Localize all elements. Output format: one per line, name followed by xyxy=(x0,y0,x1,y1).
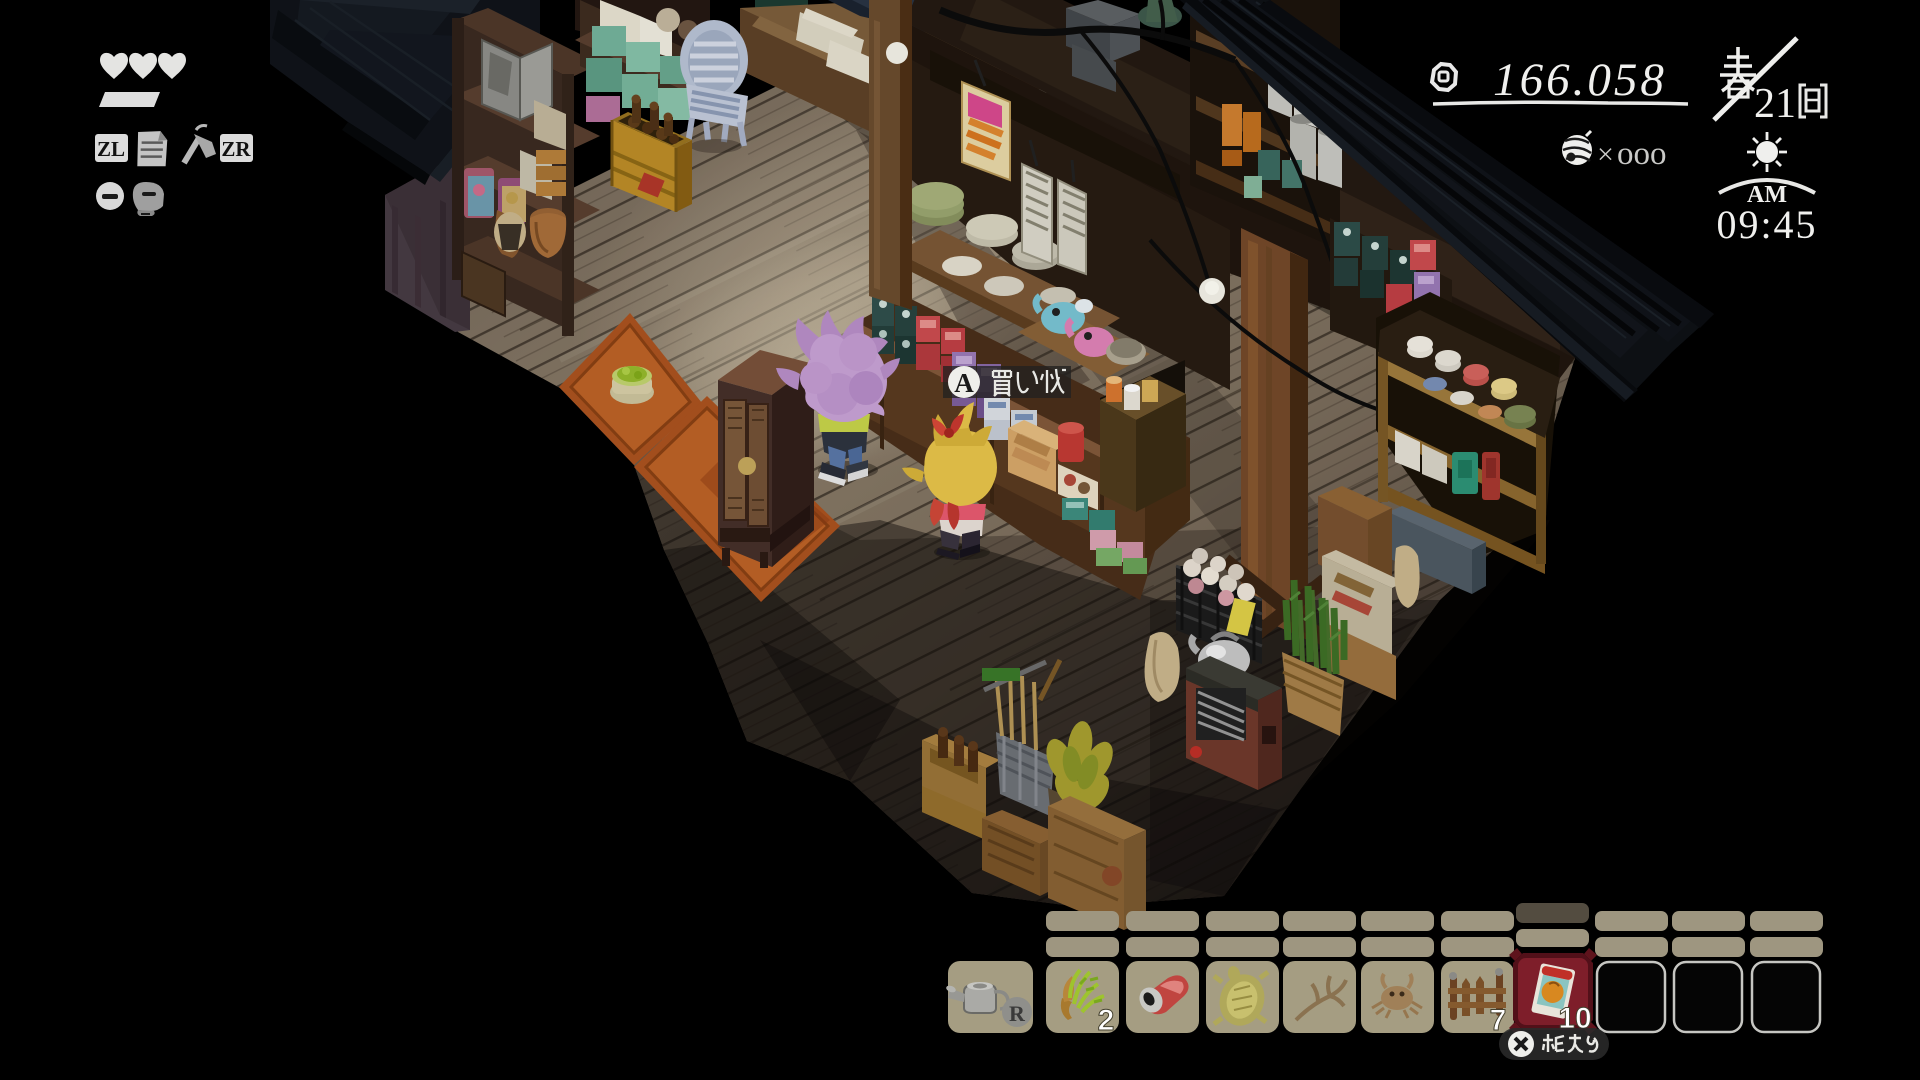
svg-text:166.058: 166.058 xyxy=(1493,54,1667,106)
svg-text:ooo: ooo xyxy=(1617,136,1667,172)
svg-text:R: R xyxy=(1009,1001,1026,1026)
svg-text:ZL: ZL xyxy=(97,137,125,161)
svg-text:A: A xyxy=(954,368,974,398)
svg-text:21: 21 xyxy=(1754,81,1796,127)
svg-text:7: 7 xyxy=(1490,1004,1507,1037)
svg-text:ZR: ZR xyxy=(221,137,251,161)
svg-text:09:45: 09:45 xyxy=(1716,202,1817,247)
svg-text:×: × xyxy=(1597,138,1614,171)
svg-text:2: 2 xyxy=(1098,1004,1115,1037)
